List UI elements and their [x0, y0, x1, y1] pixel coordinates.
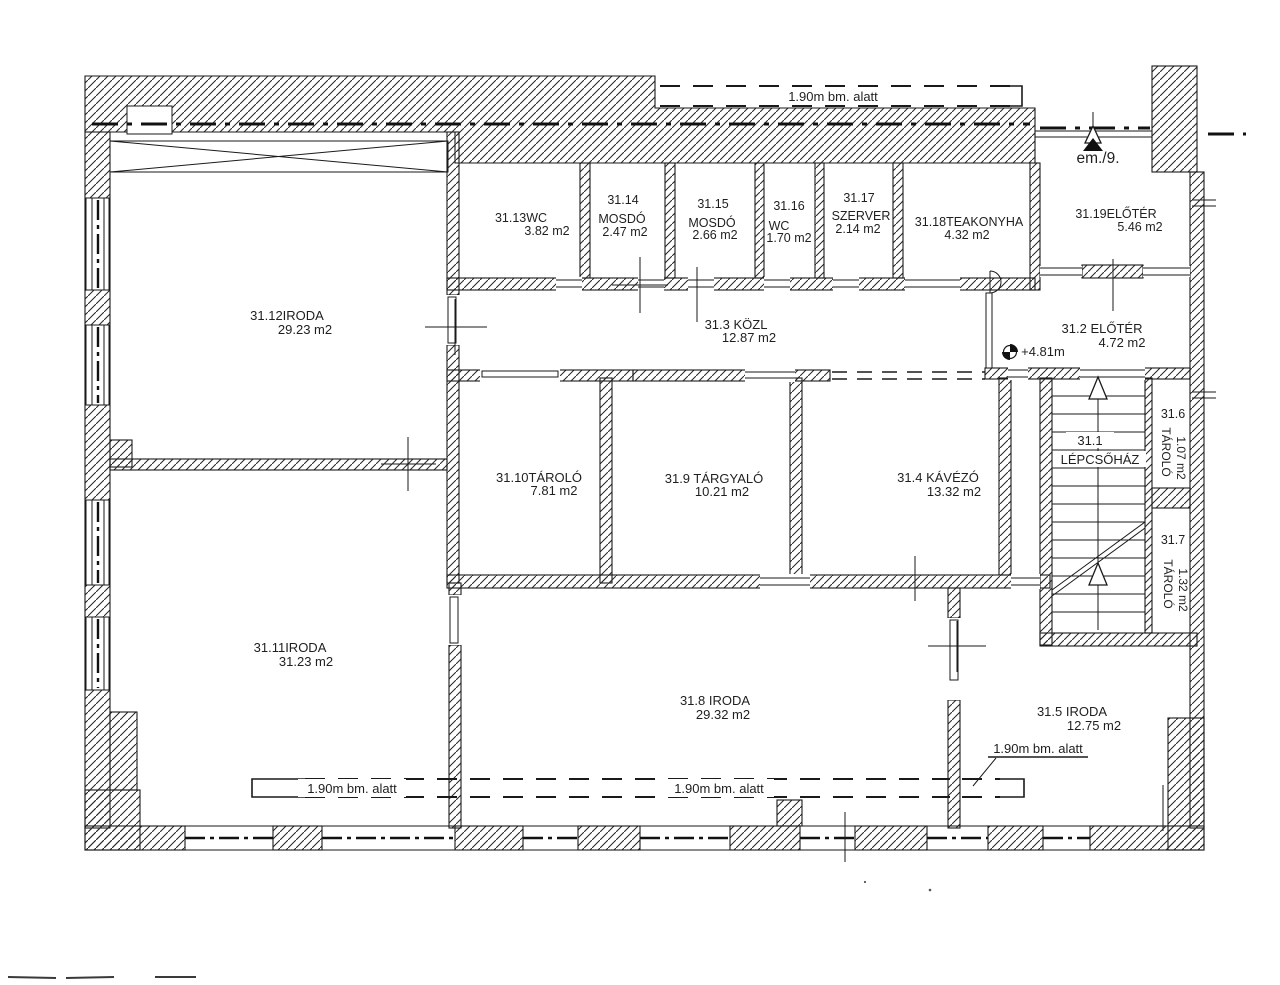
room-area-31-17: 2.14 m2 — [835, 222, 880, 236]
room-area-31-12: 29.23 m2 — [278, 322, 332, 337]
room-name-31-17: SZERVER — [832, 209, 891, 223]
room-label-31-8: 31.8 IRODA — [680, 693, 750, 708]
wall-top-right-block — [1152, 66, 1197, 172]
window-left-4 — [86, 617, 109, 690]
room-area-31-5: 12.75 m2 — [1067, 718, 1121, 733]
door-31-5 — [947, 618, 961, 700]
stair-up-arrow — [1089, 377, 1107, 399]
room-label-31-11: 31.11IRODA — [254, 640, 327, 655]
walls-interior — [110, 132, 1197, 828]
room-label-31-16: 31.16 — [773, 199, 804, 213]
room-area-31-4: 13.32 m2 — [927, 484, 981, 499]
overhang-note-right-leader — [973, 757, 1088, 786]
room-label-31-1: 31.1 — [1077, 433, 1102, 448]
door-31-10 — [480, 369, 560, 382]
beam-x-box — [110, 141, 448, 172]
room-name-31-1: LÉPCSŐHÁZ — [1061, 452, 1140, 467]
room-area-31-8: 29.32 m2 — [696, 707, 750, 722]
room-area-31-9: 10.21 m2 — [695, 484, 749, 499]
walls — [85, 66, 1204, 850]
top-band-notch — [127, 106, 172, 134]
room-label-31-4: 31.4 KÁVÉZÓ — [897, 470, 979, 485]
room-label-31-2: 31.2 ELŐTÉR — [1062, 321, 1143, 336]
room-name-31-7: TÁROLÓ — [1161, 559, 1176, 608]
door-31-12 — [446, 295, 460, 345]
room-label-31-13: 31.13WC — [495, 211, 547, 225]
room-area-31-19: 5.46 m2 — [1117, 220, 1162, 234]
window-left-1 — [86, 198, 109, 290]
staircase — [1052, 377, 1145, 630]
floor-plan-canvas: 31.12IRODA 29.23 m2 31.13WC 3.82 m2 31.1… — [0, 0, 1280, 985]
scanned-floor-plan-page: 31.12IRODA 29.23 m2 31.13WC 3.82 m2 31.1… — [0, 0, 1280, 985]
window-left-3 — [86, 500, 109, 585]
room-area-31-6: 1.07 m2 — [1174, 436, 1188, 480]
room-label-31-12: 31.12IRODA — [250, 308, 324, 323]
room-name-31-14: MOSDÓ — [598, 211, 646, 226]
room-label-31-19: 31.19ELŐTÉR — [1075, 206, 1156, 221]
door-31-9 — [745, 369, 795, 382]
room-area-31-15: 2.66 m2 — [692, 228, 737, 242]
room-area-31-7: 1.32 m2 — [1176, 568, 1190, 612]
overhang-note-bottom-mid: 1.90m bm. alatt — [674, 781, 764, 796]
overhang-note-top: 1.90m bm. alatt — [788, 89, 878, 104]
wall-corridor-31-2 — [986, 293, 992, 368]
room-area-31-18: 4.32 m2 — [944, 228, 989, 242]
room-area-31-10: 7.81 m2 — [531, 483, 578, 498]
overhang-note-right: 1.90m bm. alatt — [993, 741, 1083, 756]
room-label-31-7: 31.7 — [1161, 533, 1185, 547]
room-area-31-14: 2.47 m2 — [602, 225, 647, 239]
room-label-31-17: 31.17 — [843, 191, 874, 205]
wall-bottom-piers — [85, 800, 1204, 850]
room-label-31-14: 31.14 — [607, 193, 638, 207]
stair-mid-arrow — [1089, 563, 1107, 585]
room-name-31-6: TÁROLÓ — [1159, 427, 1174, 476]
room-label-31-18: 31.18TEAKONYHA — [915, 215, 1024, 229]
room-label-31-6: 31.6 — [1161, 407, 1185, 421]
overhang-note-bottom-left: 1.90m bm. alatt — [307, 781, 397, 796]
entrance-threshold — [1035, 128, 1246, 137]
room-area-31-11: 31.23 m2 — [279, 654, 333, 669]
scan-artifacts — [8, 881, 931, 978]
level-marker-icon — [1002, 344, 1018, 360]
window-left-2 — [86, 325, 109, 405]
room-area-31-2: 4.72 m2 — [1099, 335, 1146, 350]
room-label-31-15: 31.15 — [697, 197, 728, 211]
room-area-31-3: 12.87 m2 — [722, 330, 776, 345]
door-31-11 — [448, 595, 462, 645]
room-area-31-13: 3.82 m2 — [524, 224, 569, 238]
level-label: +4.81m — [1021, 344, 1065, 359]
room-area-31-16: 1.70 m2 — [766, 231, 811, 245]
entrance-label: em./9. — [1076, 150, 1119, 167]
room-label-31-5: 31.5 IRODA — [1037, 704, 1107, 719]
